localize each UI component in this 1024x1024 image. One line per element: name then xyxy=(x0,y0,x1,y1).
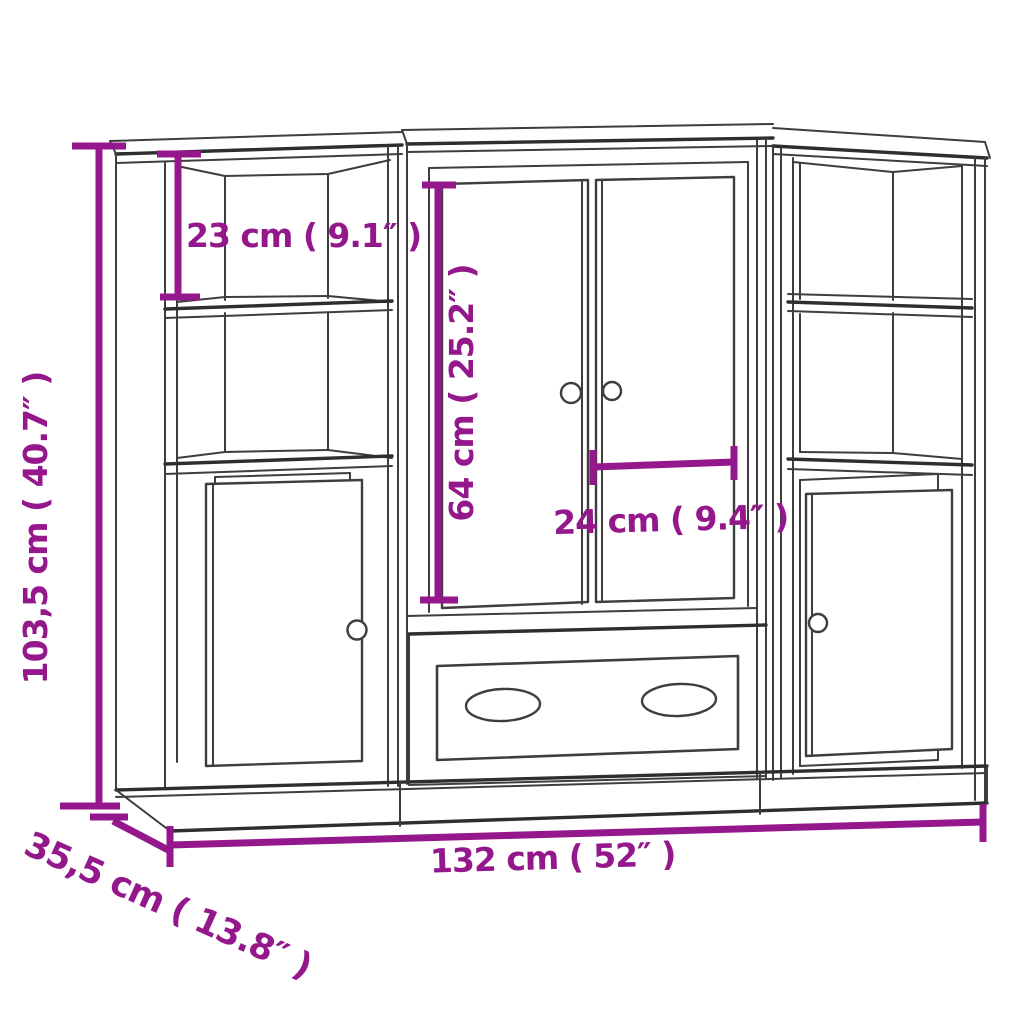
overall-width-label: 132 cm ( 52″ ) xyxy=(429,834,676,880)
center-door-width-label: 24 cm ( 9.4″ ) xyxy=(553,497,789,542)
right-door-knob xyxy=(809,614,827,632)
center-door-height-label: 64 cm ( 25.2″ ) xyxy=(442,264,481,521)
overall-height-label: 103,5 cm ( 40.7″ ) xyxy=(16,372,55,685)
highboard-diagram-svg: 103,5 cm ( 40.7″ ) 23 cm ( 9.1″ ) 64 cm … xyxy=(0,0,1024,1024)
drawer-handle-right xyxy=(641,683,716,718)
left-unit-door xyxy=(206,480,367,766)
center-right-door-knob xyxy=(603,382,621,400)
right-unit-door xyxy=(806,490,952,756)
dimension-diagram: 103,5 cm ( 40.7″ ) 23 cm ( 9.1″ ) 64 cm … xyxy=(0,0,1024,1024)
center-drawer xyxy=(409,625,766,785)
center-left-door-knob xyxy=(561,383,581,403)
base-plinth xyxy=(116,766,987,831)
top-compartment-height-label: 23 cm ( 9.1″ ) xyxy=(186,216,421,255)
drawer-handle-left xyxy=(465,688,540,723)
left-door-knob xyxy=(348,621,367,640)
right-shelf-unit xyxy=(773,128,990,802)
